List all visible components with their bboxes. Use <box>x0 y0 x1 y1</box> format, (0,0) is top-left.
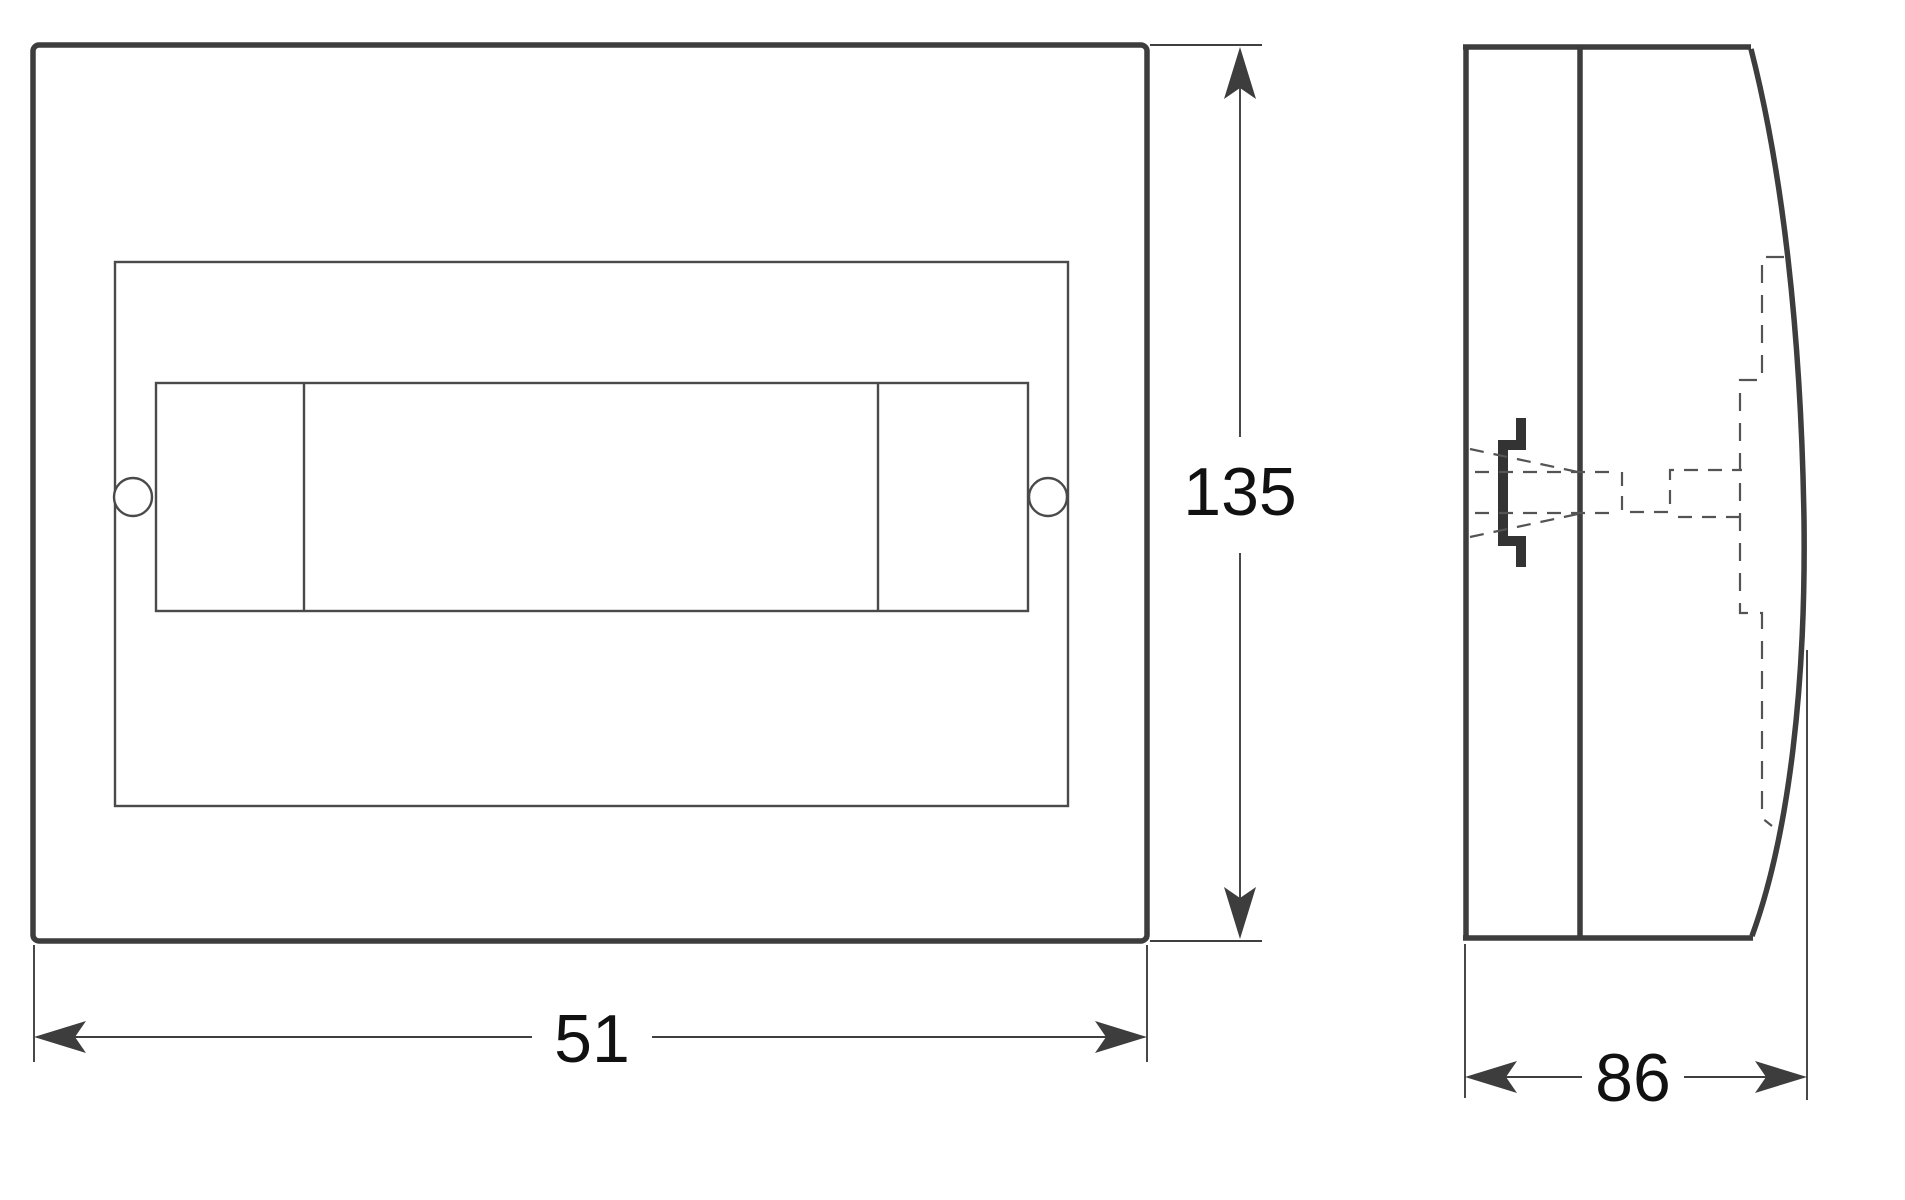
side-view <box>1463 45 1804 941</box>
width-dimension-label: 51 <box>554 1001 630 1077</box>
hidden-knockout-lines <box>1470 449 1745 537</box>
hidden-line-upper-slant <box>1470 449 1578 472</box>
hidden-cover-profile <box>1740 257 1784 826</box>
height-dimension: 135 <box>1150 45 1297 941</box>
front-view-inner-panel <box>115 262 1068 806</box>
side-view-curved-cover-edge <box>1751 49 1804 936</box>
left-screw-hole <box>114 478 152 516</box>
front-view <box>33 45 1147 941</box>
height-dimension-label: 135 <box>1183 454 1296 530</box>
depth-dimension-label: 86 <box>1595 1040 1671 1116</box>
front-view-module-window <box>156 383 1028 611</box>
depth-dimension: 86 <box>1465 650 1807 1116</box>
right-screw-hole <box>1029 478 1067 516</box>
width-dimension: 51 <box>34 945 1147 1077</box>
din-rail-clip <box>1503 418 1521 567</box>
technical-drawing-page: 135 51 <box>0 0 1905 1200</box>
hidden-line-lower-slant <box>1470 514 1578 537</box>
enclosure-dimension-drawing: 135 51 <box>0 0 1905 1200</box>
hidden-line-step <box>1622 470 1742 512</box>
